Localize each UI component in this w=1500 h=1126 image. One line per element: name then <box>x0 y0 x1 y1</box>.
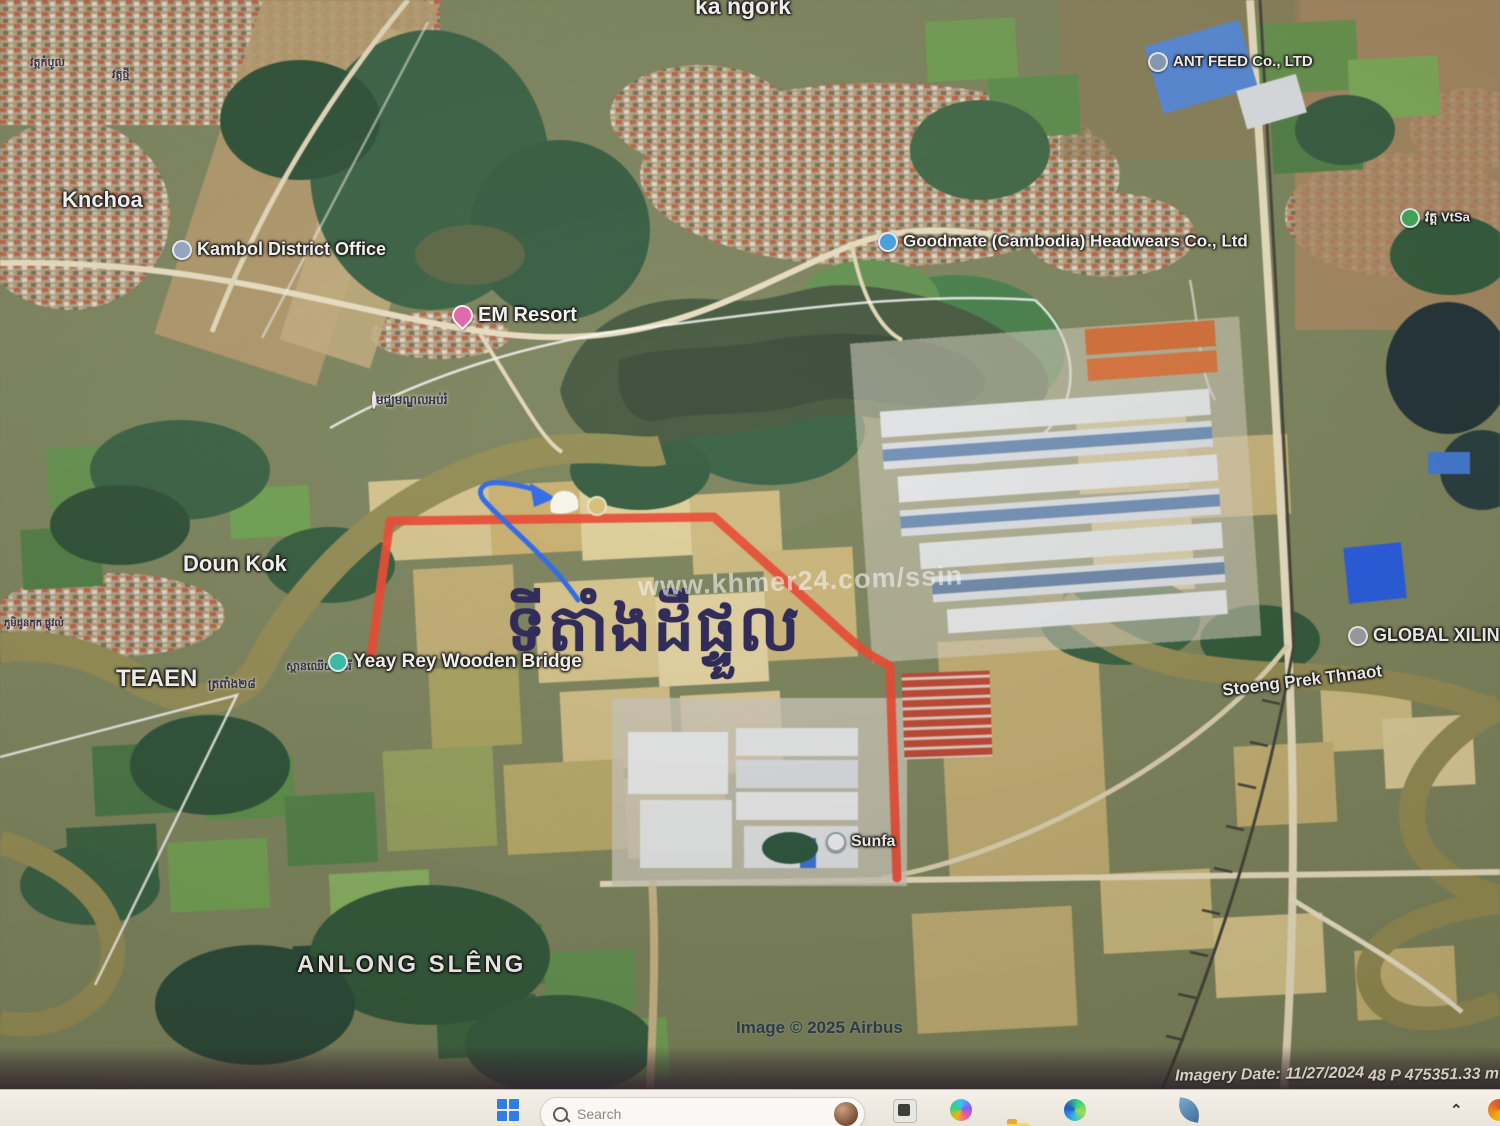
tray-chevron-icon[interactable]: ⌃ <box>1450 1101 1472 1123</box>
imagery-copyright: Image © 2025 Airbus <box>736 1018 903 1038</box>
label-anlong-sleng: ANLONG SLÊNG <box>297 952 526 978</box>
status-bar: Imagery Date: 11/27/2024 48 P 475351.33 … <box>0 1046 1500 1090</box>
search-icon <box>553 1107 568 1122</box>
label-global-xilin[interactable]: GLOBAL XILIN GA <box>1348 626 1500 646</box>
label-teaen[interactable]: TEAEN <box>116 666 197 692</box>
utm-coordinates: 48 P 475351.33 m E 12665 <box>1368 1064 1500 1085</box>
search-box[interactable]: Search <box>540 1097 865 1126</box>
bridge-poi-icon <box>328 652 348 672</box>
edge-browser-icon[interactable] <box>1064 1099 1086 1121</box>
khmer-plot-annotation: ទីតាំងដីផ្ទួល <box>505 588 805 682</box>
start-button[interactable] <box>497 1099 519 1121</box>
photo-grain <box>0 0 1500 1090</box>
satellite-map[interactable]: ka ngork វត្តកំបូល វត្តថ្មី Knchoa Kambo… <box>0 0 1500 1090</box>
green-circle-icon <box>1400 208 1420 228</box>
label-pagoda-1[interactable]: វត្តកំបូល <box>30 56 65 72</box>
poi-circle-icon <box>878 232 898 252</box>
label-kambol-district-office[interactable]: Kambol District Office <box>172 240 386 260</box>
poi-circle-icon <box>826 832 846 852</box>
label-doun-kok[interactable]: Doun Kok <box>183 552 287 576</box>
search-placeholder: Search <box>577 1106 834 1122</box>
copilot-icon[interactable] <box>950 1099 972 1121</box>
windows-taskbar: Search ⌃ <box>0 1089 1500 1126</box>
label-ant-feed[interactable]: ANT FEED Co., LTD <box>1148 52 1313 72</box>
tray-app-icon[interactable] <box>1488 1099 1500 1121</box>
imagery-date: Imagery Date: 11/27/2024 <box>1175 1064 1364 1085</box>
label-pagoda-2[interactable]: វត្តថ្មី <box>112 68 129 84</box>
poi-circle-icon <box>1348 626 1368 646</box>
poi-circle-icon <box>172 240 192 260</box>
pink-pin-icon <box>448 301 478 331</box>
poi-circle-icon <box>1148 52 1168 72</box>
label-ka-ngork[interactable]: ka ngork <box>695 0 791 19</box>
label-sunfa[interactable]: Sunfa <box>826 832 895 852</box>
label-doun-kok-khmer: ភូមិដូនកុក ផ្លូវលំ <box>4 616 64 631</box>
label-wat-right[interactable]: វត្ត VtSa <box>1400 208 1470 228</box>
label-knchoa[interactable]: Knchoa <box>62 188 143 212</box>
screen-photo: ka ngork វត្តកំបូល វត្តថ្មី Knchoa Kambo… <box>0 0 1500 1126</box>
task-view-button[interactable] <box>893 1099 917 1123</box>
search-highlight-avatar[interactable] <box>834 1102 858 1126</box>
label-em-resort[interactable]: EM Resort <box>452 304 577 326</box>
label-goodmate[interactable]: Goodmate (Cambodia) Headwears Co., Ltd <box>878 232 1248 252</box>
feather-app-icon[interactable] <box>1176 1097 1201 1122</box>
satellite-imagery <box>0 0 1500 1090</box>
label-teaen-khmer: ត្រពាំង២៨ <box>208 676 256 694</box>
label-school-khmer[interactable]: មជ្ឈមណ្ឌលអប់រំ <box>372 392 448 410</box>
